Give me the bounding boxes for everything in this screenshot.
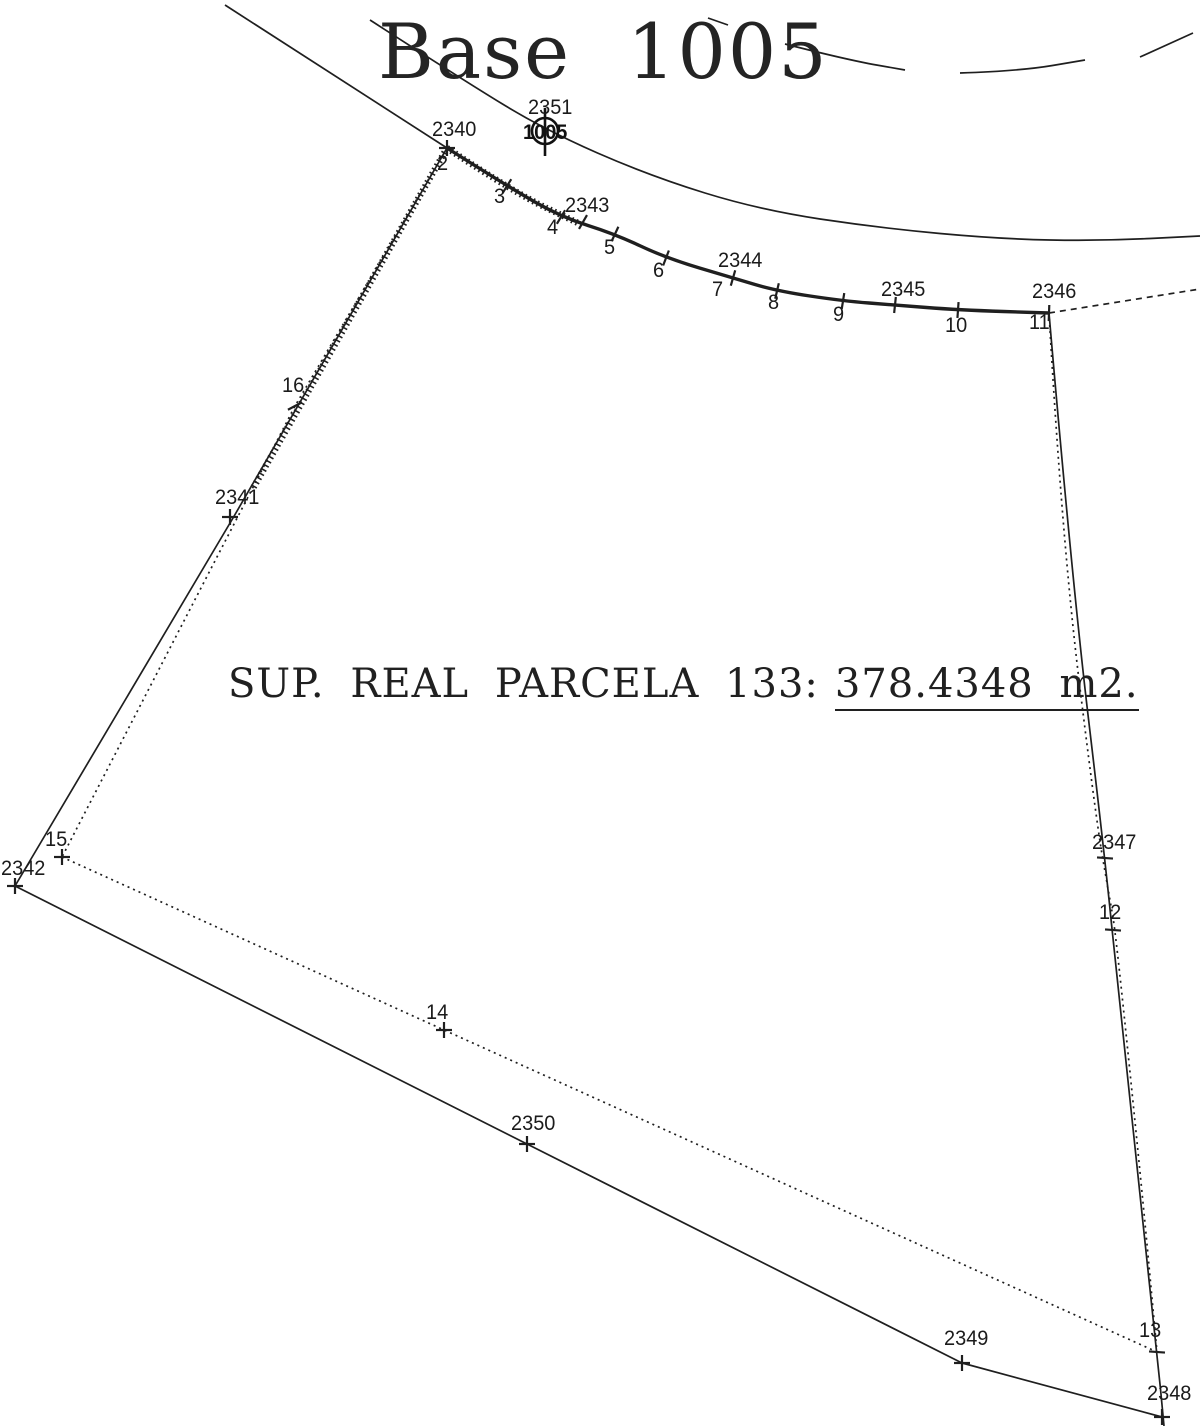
point-label-2343: 2343 xyxy=(565,195,609,216)
right-traverse-line xyxy=(1049,313,1164,1426)
outer-curb-dash-3-line xyxy=(960,60,1085,73)
page-title: Base1005 xyxy=(378,14,829,90)
point-label-12: 12 xyxy=(1099,902,1121,923)
point-label-7: 7 xyxy=(712,279,723,300)
outer-curb-dash-4-line xyxy=(1140,33,1193,57)
front-boundary-curve-line xyxy=(447,148,1049,313)
point-mark-2348 xyxy=(1154,1409,1170,1425)
point-label-13: 13 xyxy=(1139,1320,1161,1341)
point-label-10: 10 xyxy=(945,315,967,336)
point-label-2349: 2349 xyxy=(944,1328,988,1349)
point-label-2344: 2344 xyxy=(718,250,762,271)
point-label-9: 9 xyxy=(833,304,844,325)
point-mark-2347 xyxy=(1097,857,1113,858)
point-mark-15 xyxy=(54,849,70,865)
rear-boundary-line xyxy=(62,857,1157,1352)
point-label-2340: 2340 xyxy=(432,119,476,140)
base-station-symbol-text: 1005 xyxy=(523,122,567,143)
point-mark-2341 xyxy=(222,509,238,525)
point-label-2346: 2346 xyxy=(1032,281,1076,302)
title-word-1005: 1005 xyxy=(627,7,828,96)
point-label-14: 14 xyxy=(426,1002,448,1023)
title-word-base: Base xyxy=(378,7,571,96)
point-label-8: 8 xyxy=(768,292,779,313)
point-label-2342: 2342 xyxy=(1,858,45,879)
point-label-11: 11 xyxy=(1029,312,1050,333)
point-label-2: 2 xyxy=(437,153,448,174)
point-label-5: 5 xyxy=(604,237,615,258)
point-mark-12 xyxy=(1105,929,1121,930)
point-label-3: 3 xyxy=(494,186,505,207)
point-label-2350: 2350 xyxy=(511,1113,555,1134)
point-label-2341: 2341 xyxy=(215,487,259,508)
point-mark-14 xyxy=(436,1022,452,1038)
area-note-prefix: SUP. REAL PARCELA 133: xyxy=(228,661,819,707)
left-boundary-hatch-line xyxy=(252,148,447,490)
point-label-4: 4 xyxy=(547,217,558,238)
point-mark-2342 xyxy=(7,878,23,894)
area-note-value: 378.4348 m2. xyxy=(835,661,1139,711)
point-label-2348: 2348 xyxy=(1147,1383,1191,1404)
point-label-6: 6 xyxy=(653,260,664,281)
bottom-traverse-line xyxy=(15,886,1162,1417)
point-mark-2350 xyxy=(519,1136,535,1152)
survey-plan: Base1005 SUP. REAL PARCELA 133:378.4348 … xyxy=(0,0,1200,1426)
point-mark-16 xyxy=(288,402,302,410)
point-label-15: 15 xyxy=(45,829,67,850)
point-label-2345: 2345 xyxy=(881,279,925,300)
point-label-16: 16 xyxy=(282,375,304,396)
point-mark-13 xyxy=(1149,1351,1165,1352)
parcel-area-note: SUP. REAL PARCELA 133:378.4348 m2. xyxy=(228,660,1139,708)
point-label-2351: 2351 xyxy=(528,97,572,118)
point-label-2347: 2347 xyxy=(1092,832,1136,853)
point-mark-2349 xyxy=(954,1355,970,1371)
